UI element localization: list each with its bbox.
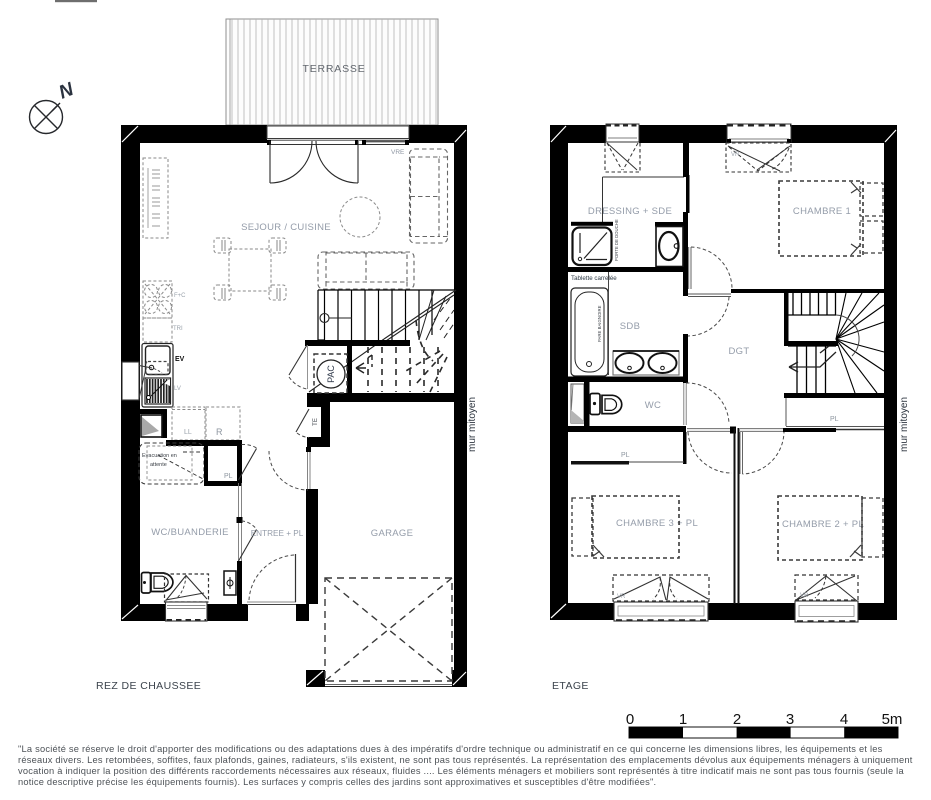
svg-text:SEJOUR / CUISINE: SEJOUR / CUISINE	[241, 222, 331, 233]
svg-text:LV: LV	[174, 386, 181, 392]
svg-text:ETAGE: ETAGE	[552, 680, 589, 692]
svg-text:TERRASSE: TERRASSE	[303, 63, 366, 75]
svg-text:vocation à indiquer la positio: vocation à indiquer la position des diff…	[18, 766, 904, 776]
svg-text:mur mitoyen: mur mitoyen	[899, 397, 910, 452]
svg-text:4: 4	[840, 711, 848, 728]
svg-text:VR: VR	[800, 593, 809, 599]
svg-text:PAC: PAC	[326, 365, 336, 383]
svg-text:3: 3	[786, 711, 794, 728]
svg-text:"La société se réserve le droi: "La société se réserve le droit d'apport…	[18, 744, 883, 754]
svg-text:VR: VR	[617, 594, 626, 600]
svg-text:Evacuation en: Evacuation en	[142, 453, 177, 459]
svg-text:notice descriptive précise les: notice descriptive précise les équipemen…	[18, 777, 656, 787]
svg-text:attente: attente	[150, 462, 167, 468]
svg-text:CHAMBRE 1: CHAMBRE 1	[793, 206, 851, 217]
svg-text:0: 0	[626, 711, 634, 728]
svg-text:ENTREE + PL: ENTREE + PL	[251, 529, 304, 538]
svg-text:EV: EV	[175, 356, 185, 363]
svg-text:DGT: DGT	[729, 346, 750, 357]
svg-text:réseaux divers. Les retombées,: réseaux divers. Les retombées, soffites,…	[18, 755, 913, 765]
svg-text:PORTE DE DOUCHE: PORTE DE DOUCHE	[614, 219, 619, 261]
svg-text:1: 1	[679, 711, 687, 728]
svg-text:2: 2	[733, 711, 741, 728]
svg-text:Tablette carrelée: Tablette carrelée	[571, 275, 617, 282]
svg-text:R: R	[216, 427, 223, 437]
svg-text:GARAGE: GARAGE	[371, 528, 413, 539]
svg-text:TRI: TRI	[173, 326, 183, 332]
svg-text:PARE BAIGNOIRE: PARE BAIGNOIRE	[597, 305, 602, 342]
svg-text:F+C: F+C	[174, 293, 186, 299]
svg-text:WC/BUANDERIE: WC/BUANDERIE	[151, 527, 229, 538]
svg-text:PL: PL	[830, 416, 839, 423]
svg-text:mur mitoyen: mur mitoyen	[467, 397, 478, 452]
svg-text:TE: TE	[313, 418, 319, 426]
svg-text:WC: WC	[645, 400, 661, 411]
svg-text:VRE: VRE	[391, 149, 405, 156]
svg-text:5m: 5m	[882, 711, 903, 728]
svg-text:PL: PL	[621, 452, 630, 459]
svg-text:CHAMBRE 3 + PL: CHAMBRE 3 + PL	[616, 518, 698, 529]
svg-text:REZ DE CHAUSSEE: REZ DE CHAUSSEE	[96, 680, 201, 692]
svg-text:PL: PL	[224, 473, 233, 480]
svg-text:CHAMBRE 2 + PL: CHAMBRE 2 + PL	[782, 519, 864, 530]
svg-text:LL: LL	[184, 429, 192, 436]
svg-text:SDB: SDB	[620, 321, 640, 332]
svg-text:VR: VR	[731, 152, 740, 158]
svg-text:DRESSING + SDE: DRESSING + SDE	[588, 206, 672, 217]
